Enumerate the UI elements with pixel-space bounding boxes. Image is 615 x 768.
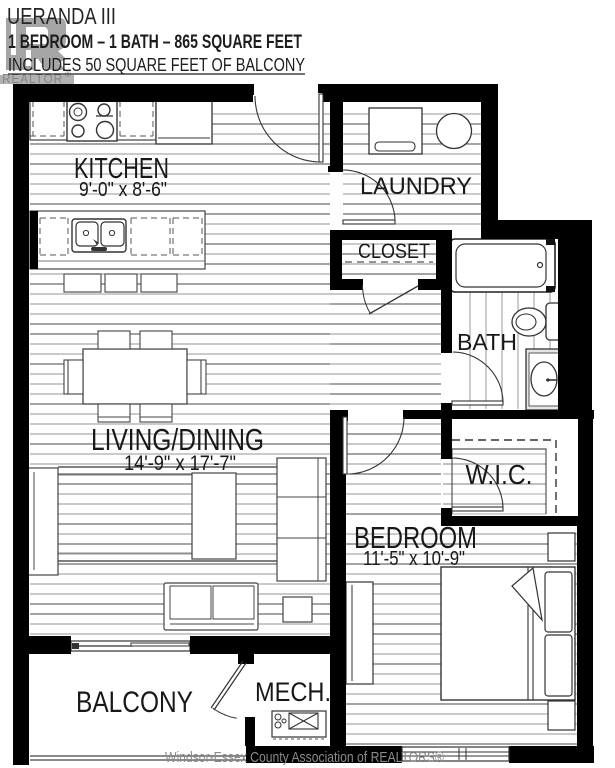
svg-text:9'-0" x 8'-6": 9'-0" x 8'-6": [79, 179, 167, 201]
svg-text:UERANDA III: UERANDA III: [7, 3, 116, 29]
svg-text:BALCONY: BALCONY: [76, 686, 193, 719]
svg-text:14'-9" x 17'-7": 14'-9" x 17'-7": [124, 452, 236, 475]
svg-text:MECH.: MECH.: [255, 677, 331, 707]
svg-text:11'-5" x 10'-9": 11'-5" x 10'-9": [363, 548, 465, 570]
svg-text:Windsor-Essex County Associati: Windsor-Essex County Association of REAL…: [165, 749, 444, 766]
svg-text:W.I.C.: W.I.C.: [466, 459, 533, 490]
svg-text:BATH: BATH: [457, 329, 517, 355]
svg-text:INCLUDES 50 SQUARE FEET OF BAL: INCLUDES 50 SQUARE FEET OF BALCONY: [8, 54, 305, 75]
svg-text:CLOSET: CLOSET: [358, 240, 430, 263]
svg-text:1 BEDROOM – 1 BATH – 865 SQUAR: 1 BEDROOM – 1 BATH – 865 SQUARE FEET: [8, 32, 302, 53]
svg-text:LAUNDRY: LAUNDRY: [360, 173, 472, 200]
